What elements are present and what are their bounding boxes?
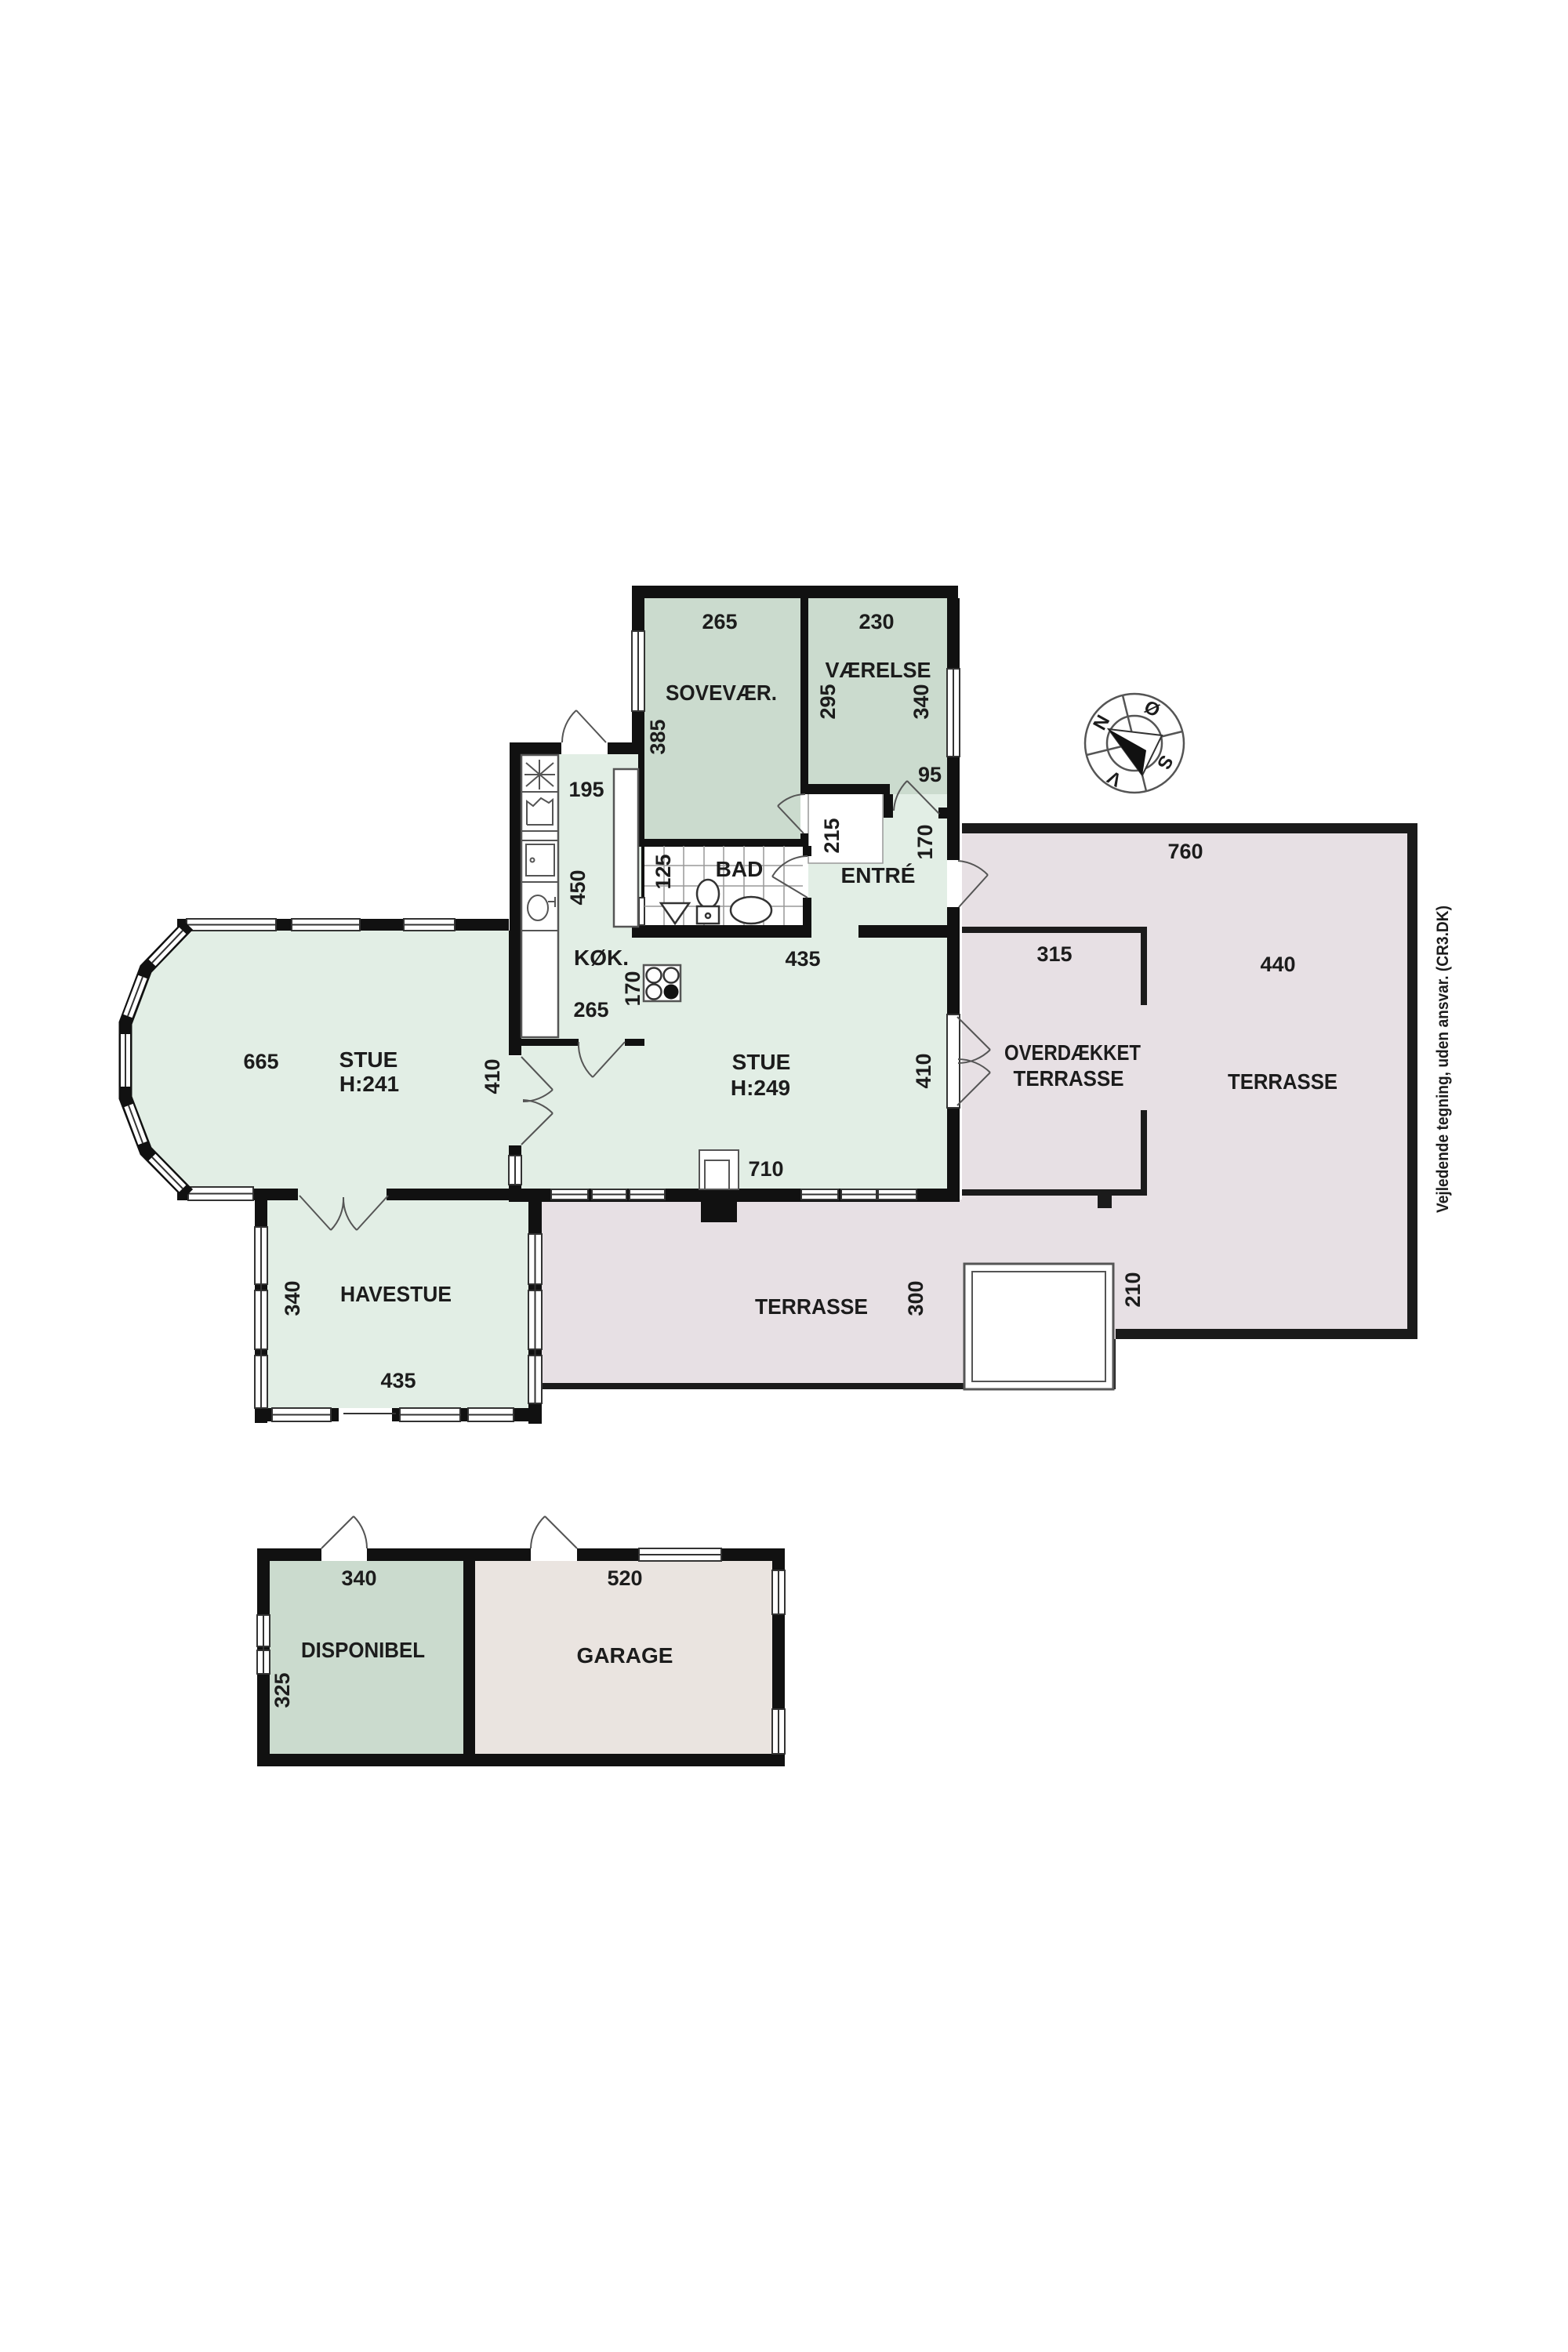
svg-text:OVERDÆKKET: OVERDÆKKET [1004,1040,1141,1065]
svg-text:265: 265 [573,998,608,1022]
svg-text:410: 410 [912,1053,935,1088]
svg-text:STUE: STUE [732,1050,791,1074]
svg-text:TERRASSE: TERRASSE [1014,1066,1124,1091]
svg-text:BAD: BAD [716,857,764,881]
svg-text:170: 170 [913,824,937,859]
svg-text:KØK.: KØK. [574,946,629,970]
svg-text:GARAGE: GARAGE [577,1643,673,1668]
svg-text:385: 385 [646,719,670,754]
svg-text:340: 340 [909,684,933,719]
svg-text:315: 315 [1036,942,1072,966]
svg-text:265: 265 [702,610,737,633]
svg-text:SOVEVÆR.: SOVEVÆR. [666,681,777,705]
svg-text:VÆRELSE: VÆRELSE [826,658,931,682]
svg-text:710: 710 [748,1157,783,1181]
svg-text:410: 410 [481,1058,504,1094]
svg-text:ENTRÉ: ENTRÉ [841,863,916,887]
svg-text:295: 295 [816,684,840,719]
svg-text:170: 170 [621,971,644,1006]
svg-text:230: 230 [858,610,894,633]
svg-text:665: 665 [243,1050,278,1073]
svg-text:125: 125 [652,854,675,889]
svg-text:340: 340 [281,1280,304,1316]
svg-text:520: 520 [607,1566,642,1590]
svg-text:440: 440 [1260,953,1295,976]
svg-text:435: 435 [380,1369,416,1392]
svg-text:DISPONIBEL: DISPONIBEL [301,1638,425,1662]
svg-text:435: 435 [785,947,820,971]
svg-text:H:241: H:241 [339,1072,399,1096]
svg-text:HAVESTUE: HAVESTUE [340,1282,452,1306]
svg-text:760: 760 [1167,840,1203,863]
svg-text:340: 340 [341,1566,376,1590]
svg-text:95: 95 [918,763,942,786]
svg-text:Vejledende tegning, uden ansva: Vejledende tegning, uden ansvar. (CR3.DK… [1434,906,1452,1213]
svg-text:195: 195 [568,778,604,801]
svg-text:450: 450 [566,869,590,905]
svg-text:TERRASSE: TERRASSE [755,1294,868,1319]
svg-text:H:249: H:249 [731,1076,790,1100]
svg-text:210: 210 [1121,1272,1145,1307]
svg-text:300: 300 [904,1280,927,1316]
svg-text:215: 215 [820,818,844,853]
svg-text:TERRASSE: TERRASSE [1228,1069,1338,1094]
svg-text:325: 325 [270,1672,294,1708]
svg-text:STUE: STUE [339,1047,398,1072]
